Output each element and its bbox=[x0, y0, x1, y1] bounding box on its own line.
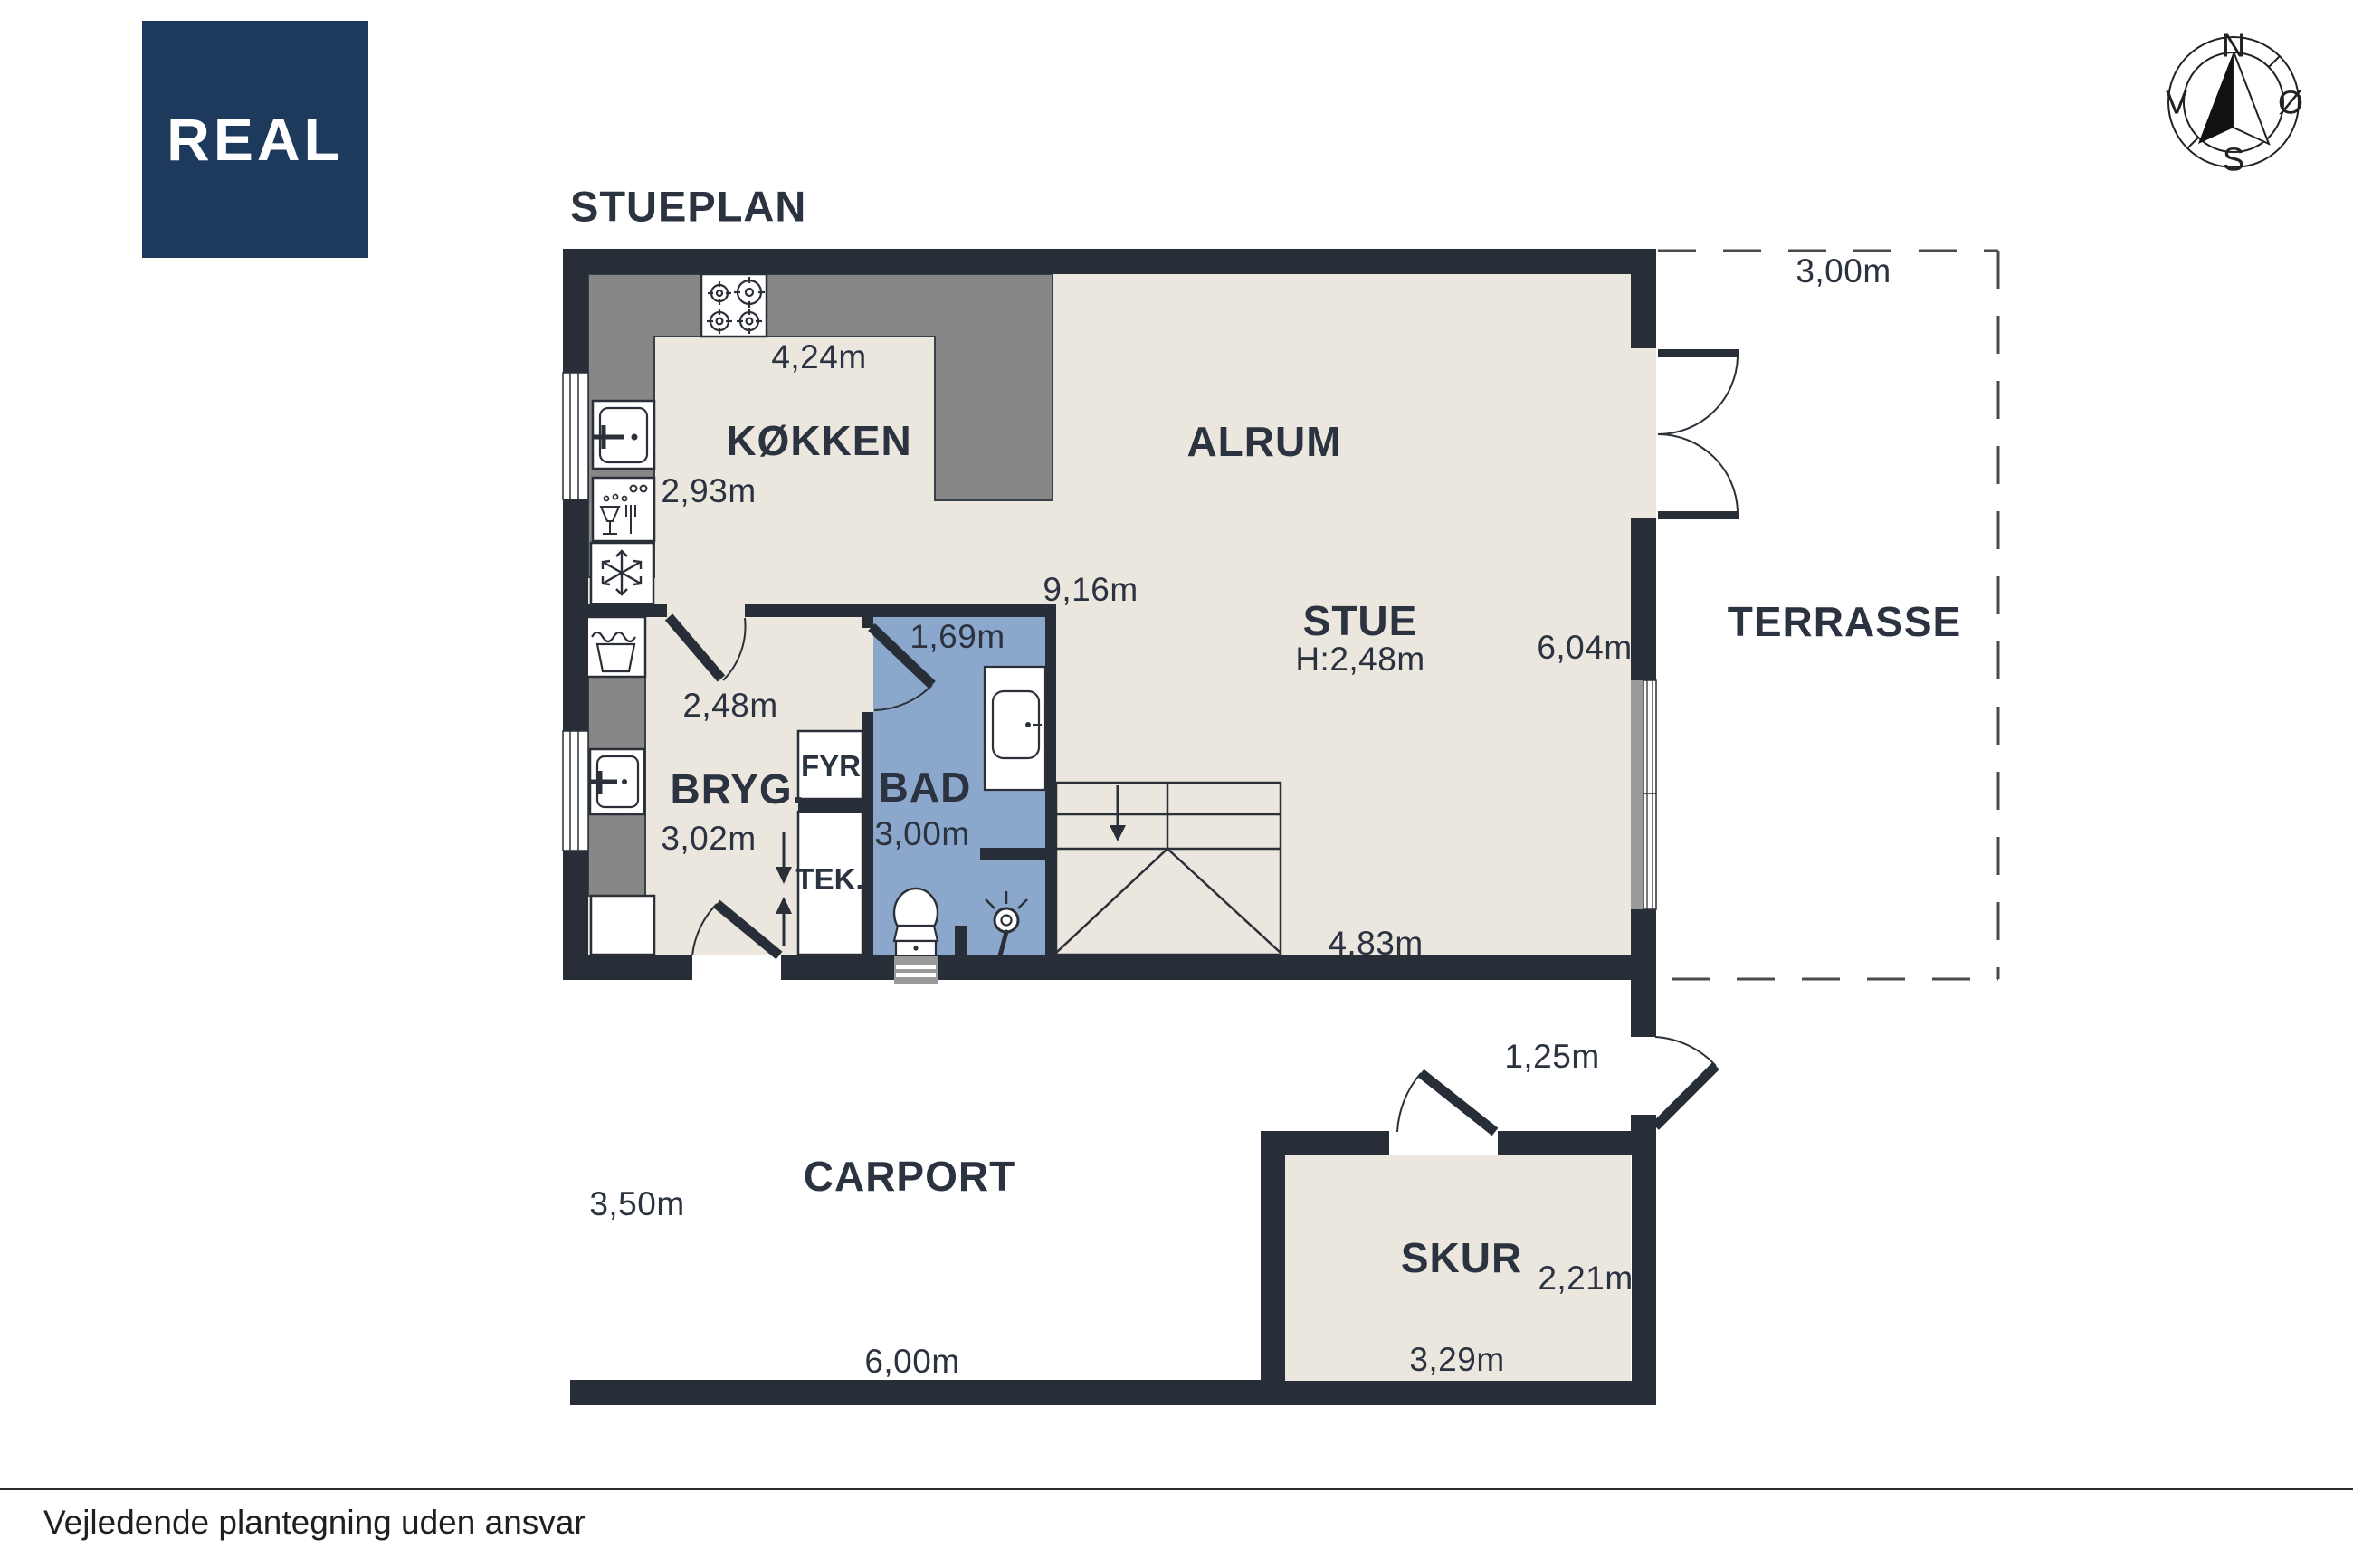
measure-stue-depth: 6,04m bbox=[1537, 629, 1632, 667]
page-title: STUEPLAN bbox=[570, 182, 806, 232]
room-label-carport: CARPORT bbox=[804, 1152, 1015, 1201]
compass-south-label: S bbox=[2223, 141, 2244, 178]
measure-kokken-depth: 2,93m bbox=[661, 472, 756, 510]
measure-bryg-depth: 3,02m bbox=[661, 820, 756, 858]
floorplan-page: REAL bbox=[0, 0, 2353, 1568]
measure-bad-width: 1,69m bbox=[910, 618, 1005, 656]
dishwasher-icon bbox=[593, 478, 654, 541]
room-label-tek: TEK. bbox=[795, 862, 863, 897]
room-label-kokken: KØKKEN bbox=[726, 416, 911, 465]
washing-machine-icon bbox=[586, 617, 645, 677]
disclaimer-text: Vejledende plantegning uden ansvar bbox=[43, 1504, 586, 1542]
bryggers-sink-icon bbox=[590, 749, 644, 814]
terrace-double-door-icon bbox=[1658, 349, 1739, 519]
measure-carport-width: 6,00m bbox=[864, 1343, 959, 1381]
skur-door-icon bbox=[1397, 1073, 1495, 1132]
bathroom-sink-icon bbox=[985, 667, 1045, 790]
measure-stue-ceiling: H:2,48m bbox=[1295, 641, 1424, 679]
passage-door-icon bbox=[1655, 1037, 1716, 1126]
measure-terrasse-width: 3,00m bbox=[1796, 252, 1891, 290]
carport-wall bbox=[570, 1380, 1285, 1405]
room-label-terrasse: TERRASSE bbox=[1728, 597, 1961, 646]
toilet-icon bbox=[894, 889, 938, 984]
measure-skur-depth: 2,21m bbox=[1538, 1259, 1633, 1297]
stove-icon bbox=[701, 274, 767, 337]
compass-north-label: N bbox=[2222, 27, 2245, 64]
measure-kokken-width: 4,24m bbox=[771, 338, 866, 376]
room-label-bryg: BRYG. bbox=[671, 765, 805, 813]
window-icon bbox=[563, 731, 588, 851]
cabinet-icon bbox=[591, 896, 654, 955]
measure-passage-door: 1,25m bbox=[1504, 1038, 1599, 1076]
measure-bad-depth: 3,00m bbox=[874, 815, 969, 853]
measure-stue-bottom: 4,83m bbox=[1328, 925, 1423, 963]
room-label-stue: STUE bbox=[1303, 596, 1418, 645]
freezer-icon bbox=[591, 543, 653, 604]
compass-icon: N Ø S V bbox=[2166, 27, 2303, 178]
room-label-bad: BAD bbox=[879, 763, 972, 812]
footer-divider bbox=[0, 1488, 2353, 1490]
window-icon bbox=[563, 373, 588, 499]
room-label-fyr: FYR bbox=[801, 749, 861, 784]
floorplan-drawing: N Ø S V bbox=[0, 0, 2353, 1568]
measure-skur-width: 3,29m bbox=[1409, 1341, 1504, 1379]
measure-stue-width: 9,16m bbox=[1043, 571, 1138, 609]
window-icon bbox=[1631, 680, 1656, 909]
passage-walls bbox=[1631, 980, 1656, 1133]
compass-east-label: Ø bbox=[2278, 84, 2303, 121]
measure-carport-depth: 3,50m bbox=[589, 1185, 684, 1223]
kitchen-sink-icon bbox=[593, 401, 654, 469]
compass-west-label: V bbox=[2166, 84, 2187, 121]
room-label-skur: SKUR bbox=[1401, 1233, 1522, 1282]
measure-bryg-door: 2,48m bbox=[682, 687, 777, 725]
room-label-alrum: ALRUM bbox=[1186, 417, 1341, 466]
